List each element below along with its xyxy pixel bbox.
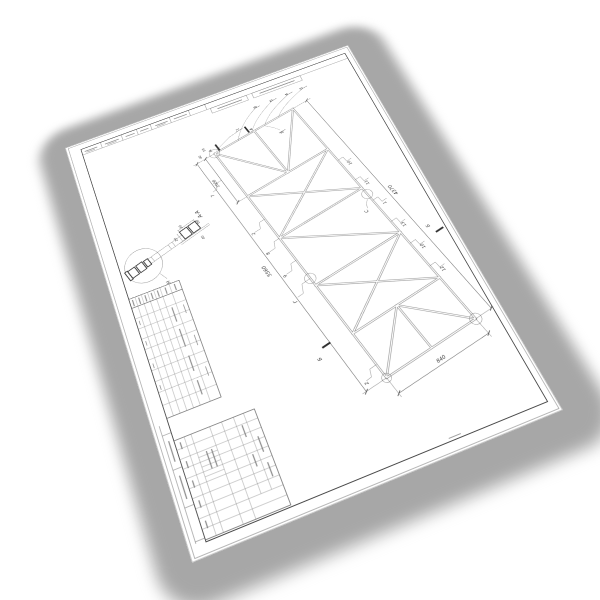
canvas-background: 5560 4370 1000 840 50 40 6 5 4 3 8 1 2 8… (0, 0, 600, 600)
